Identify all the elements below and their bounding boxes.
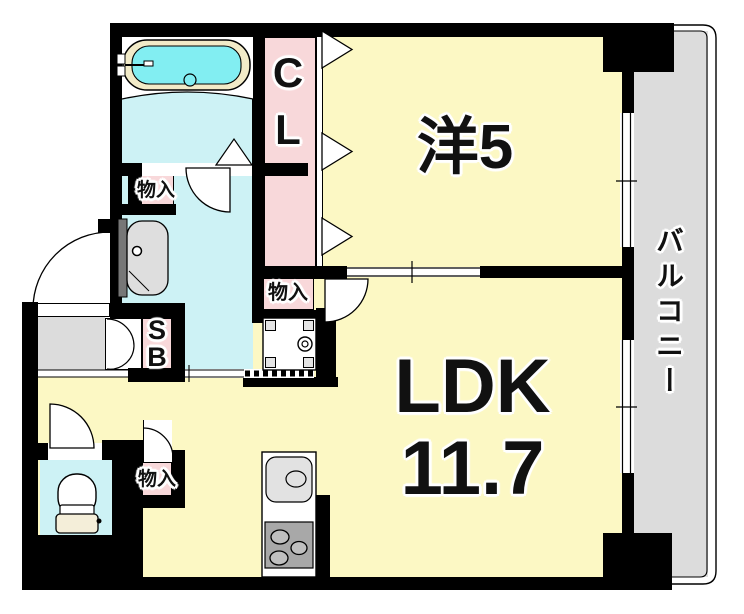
bath-door-icon: [216, 139, 252, 165]
entrance-step-line: [38, 370, 128, 377]
washbasin-icon: [118, 219, 168, 297]
kitchen-sink-icon: [266, 457, 312, 502]
floorplan-canvas: 洋5 LDK 11.7 バルコニー CL SB 物入 物入 物入: [0, 0, 744, 614]
washing-machine-pan-icon: [263, 318, 316, 370]
closet-folding-door-icon: [322, 31, 352, 255]
room-label-shoebox: SB: [143, 317, 171, 371]
kitchen-counter-icon: [262, 452, 316, 577]
bathtub-icon: [117, 40, 250, 90]
toilet-icon: [56, 474, 102, 533]
shoe-box-door-arcs: [107, 319, 134, 369]
window-western-room: [616, 113, 637, 247]
room-label-ldk: LDK: [360, 346, 585, 428]
ldk-door-arc: [325, 279, 368, 322]
room-label-ldk-size: 11.7: [360, 428, 585, 510]
label-storage-upper: 物入: [135, 180, 177, 202]
window-ldk: [616, 340, 637, 473]
toilet-door-arc: [50, 404, 94, 448]
storage-lower-door-arc: [143, 428, 173, 458]
room-label-closet: CL: [266, 44, 310, 158]
stove-icon: [265, 522, 313, 568]
fixtures-overlay: [0, 0, 744, 614]
washroom-door-arc: [186, 168, 230, 212]
washroom-sliding-door: [185, 365, 244, 382]
room-label-balcony: バルコニー: [650, 206, 688, 421]
entrance-door-arc: [33, 232, 110, 309]
label-storage-lower: 物入: [136, 469, 178, 491]
label-storage-middle: 物入: [262, 282, 314, 305]
room-label-western: 洋5: [350, 108, 580, 188]
